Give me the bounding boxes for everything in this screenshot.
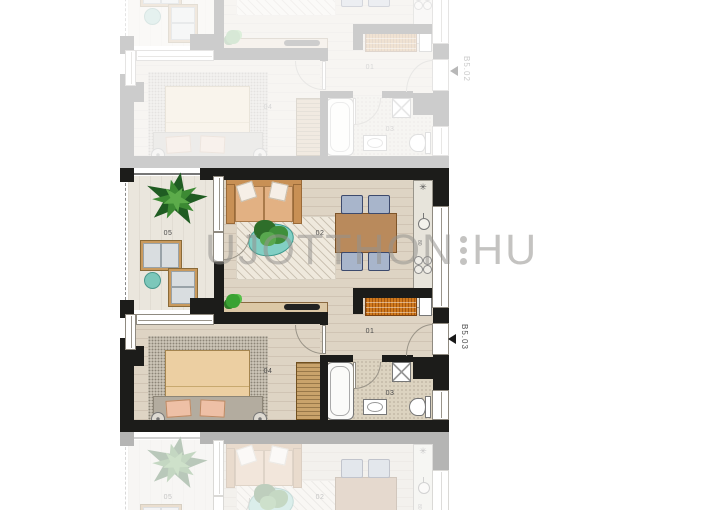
- bed-pillow: [200, 135, 226, 153]
- watermark: UJOTTHON HU: [205, 226, 538, 274]
- wall: [353, 24, 433, 34]
- wall: [353, 24, 363, 50]
- toilet: [409, 134, 426, 152]
- utility-shaft: [413, 357, 433, 379]
- entry-arrow-icon: [448, 334, 456, 344]
- room-label-hall: 01: [358, 328, 382, 335]
- room-label-bathroom: 03: [378, 390, 402, 397]
- chair-cushion: [143, 243, 161, 268]
- wall: [328, 91, 353, 98]
- washing-machine: [392, 98, 411, 118]
- main-floor-plan: ✳ 80 05 02 01 04 03: [120, 0, 460, 168]
- wall: [433, 308, 449, 323]
- console-plant: [226, 30, 240, 44]
- bathtub: [326, 362, 354, 420]
- chair-cushion: [171, 7, 195, 23]
- wall: [353, 288, 363, 314]
- wall: [200, 168, 449, 180]
- wall: [328, 355, 353, 362]
- wall: [200, 432, 449, 444]
- balcony-railing: [125, 178, 128, 300]
- bedroom-corner-window-top: [136, 314, 214, 325]
- wardrobe: [296, 98, 321, 156]
- sink-tap: [423, 477, 424, 483]
- kitchen-window: [432, 0, 449, 44]
- wall: [214, 48, 327, 60]
- bathroom-window: [432, 390, 449, 420]
- dining-chair: [368, 0, 390, 7]
- balcony-railing: [125, 0, 128, 36]
- hall-box: [419, 32, 432, 52]
- room-label-bathroom: 03: [378, 126, 402, 133]
- rug-plant: [260, 496, 276, 510]
- dining-chair: [368, 459, 390, 478]
- bed-pillow: [200, 399, 226, 417]
- sofa-arm: [293, 184, 302, 224]
- dining-chair: [368, 195, 390, 214]
- bed-duvet-line: [166, 386, 249, 387]
- bathroom-sink: [363, 135, 387, 151]
- tv: [284, 40, 320, 46]
- balcony-plant: [144, 172, 208, 226]
- wall: [320, 48, 328, 61]
- wall: [320, 312, 328, 325]
- lounge-chair: [140, 504, 182, 510]
- balcony-side-table: [144, 272, 161, 289]
- bedroom-corner-window-top: [136, 50, 214, 61]
- bed-pillow: [165, 135, 191, 154]
- sofa-arm: [226, 184, 235, 224]
- bathtub-inner: [330, 102, 350, 152]
- bathtub: [326, 98, 354, 156]
- sink-basin: [367, 138, 383, 148]
- sink-basin: [367, 402, 383, 412]
- hob-burner: [423, 1, 432, 10]
- room-label-living: 02: [308, 494, 332, 501]
- wall: [320, 91, 328, 156]
- bedroom-corner-window-side: [125, 50, 136, 86]
- wall: [120, 168, 134, 182]
- wall: [433, 168, 449, 206]
- watermark-dots-icon: [460, 236, 467, 265]
- wall: [120, 432, 134, 446]
- living-room-rug: [236, 0, 336, 16]
- unit-number: B5.03: [460, 324, 469, 350]
- throw-pillow: [268, 181, 288, 201]
- room-label-bedroom: 04: [256, 368, 280, 375]
- wall: [433, 432, 449, 470]
- unit-number: B5.02: [462, 56, 471, 82]
- dining-chair: [341, 195, 363, 214]
- unit-label-neighbor: B5.02: [450, 56, 471, 82]
- bathroom-sink: [363, 399, 387, 415]
- kitchen-sink: [418, 482, 430, 494]
- balcony-door-swing: [224, 498, 250, 510]
- utility-shaft: [413, 93, 433, 115]
- wardrobe: [296, 362, 321, 420]
- entry-arrow-icon: [450, 66, 458, 76]
- tv: [284, 304, 320, 310]
- chair-cushion: [143, 0, 161, 4]
- room-label-hall: 01: [358, 64, 382, 71]
- balcony-sliding-door: [213, 440, 224, 496]
- chair-cushion: [171, 271, 195, 287]
- balcony-door-leaf: [213, 496, 224, 510]
- sofa-arm: [293, 448, 302, 488]
- room-label-bedroom: 04: [256, 104, 280, 111]
- chair-cushion: [161, 243, 179, 268]
- wall: [433, 91, 449, 126]
- balcony-plant: [144, 436, 208, 490]
- sofa: [226, 178, 302, 224]
- hall-cabinet: [365, 296, 417, 316]
- console-plant: [226, 294, 240, 308]
- wall: [120, 156, 449, 168]
- floor-plan-canvas: { "page": { "type": "apartment-floor-pla…: [0, 0, 720, 510]
- room-label-balcony: 05: [156, 230, 180, 237]
- bathtub-inner: [330, 366, 350, 416]
- kitchen-window: [432, 470, 449, 510]
- bedroom-corner-window-side: [125, 314, 136, 350]
- hall-box: [419, 296, 432, 316]
- kitchen-dimension-label: 80: [416, 504, 422, 510]
- wall: [382, 91, 413, 98]
- entry-door-opening: [432, 59, 449, 91]
- hall-cabinet: [365, 32, 417, 52]
- kitchen-hob-symbol: ✳: [413, 446, 433, 457]
- wall: [120, 420, 449, 432]
- wall: [433, 355, 449, 390]
- sink-tap: [423, 213, 424, 219]
- sofa-arm: [226, 448, 235, 488]
- sofa: [226, 442, 302, 488]
- balcony-sliding-door: [213, 176, 224, 232]
- kitchen-hob-symbol: ✳: [413, 182, 433, 193]
- main-floor-plan: ✳ 80 05 02 01 04 03: [120, 432, 460, 510]
- dining-table: [335, 477, 397, 510]
- throw-pillow: [268, 445, 288, 465]
- dining-chair: [341, 459, 363, 478]
- toilet: [409, 398, 426, 416]
- unit-label-current: B5.03: [448, 324, 469, 350]
- washing-machine: [392, 362, 411, 382]
- wall: [320, 355, 328, 420]
- lounge-chair: [140, 240, 182, 271]
- main-floor-plan: ✳ 80 05 02 01 04 03: [120, 168, 460, 432]
- dining-chair: [341, 0, 363, 7]
- wall: [433, 44, 449, 59]
- wall: [353, 288, 433, 298]
- bed-duvet-line: [166, 122, 249, 123]
- bathroom-window: [432, 126, 449, 156]
- watermark-text-right: HU: [472, 226, 538, 275]
- wall: [214, 312, 327, 324]
- balcony-side-table: [144, 8, 161, 25]
- room-label-balcony: 05: [156, 494, 180, 501]
- hob-burner: [414, 1, 423, 10]
- bed-pillow: [165, 399, 191, 418]
- balcony-railing: [125, 442, 128, 510]
- entry-door-opening: [432, 323, 449, 355]
- wall: [382, 355, 413, 362]
- watermark-text-left: UJOTTHON: [205, 226, 455, 275]
